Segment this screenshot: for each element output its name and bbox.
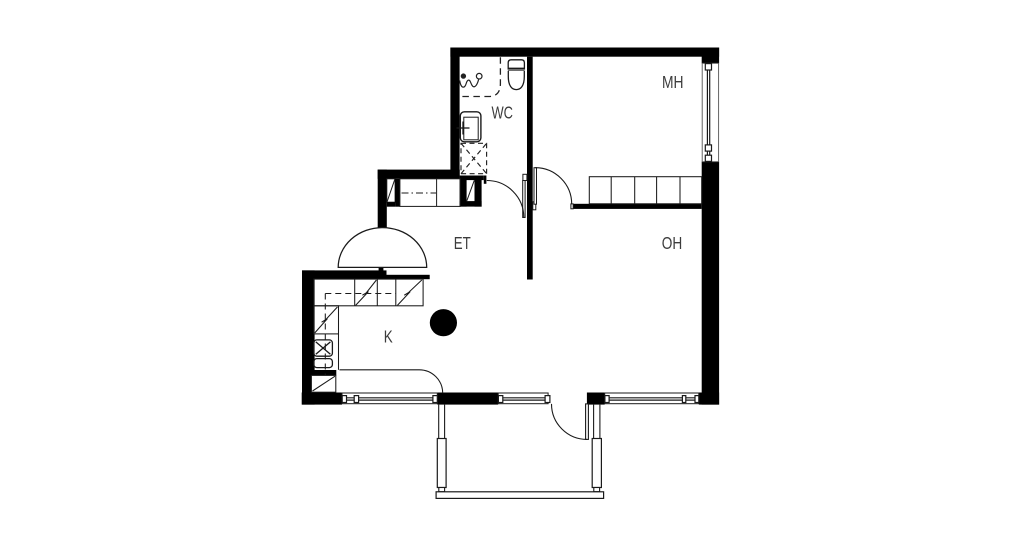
svg-text:MH: MH bbox=[662, 72, 684, 92]
svg-text:K: K bbox=[384, 327, 393, 347]
svg-text:ET: ET bbox=[454, 233, 471, 253]
svg-text:WC: WC bbox=[491, 102, 513, 122]
svg-text:OH: OH bbox=[662, 233, 683, 253]
